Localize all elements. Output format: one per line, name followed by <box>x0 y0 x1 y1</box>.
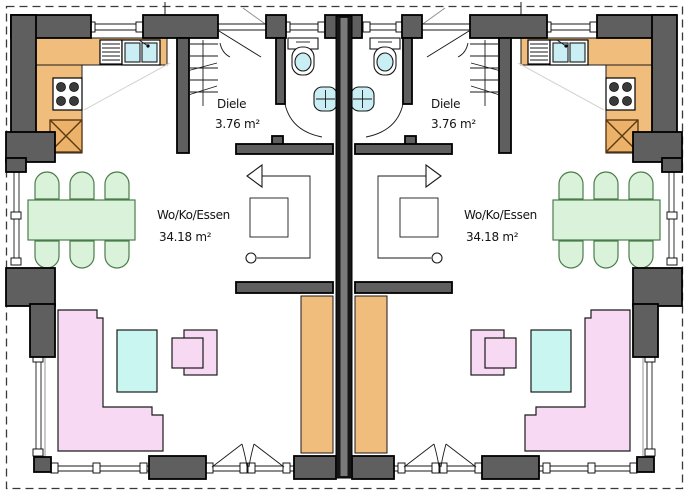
chair <box>105 172 129 199</box>
wall-top-left-block <box>143 15 218 38</box>
chair <box>70 241 94 268</box>
wall-left-upper <box>11 15 36 135</box>
wall-pier-bottom-center-right <box>352 456 394 479</box>
chair <box>629 241 653 268</box>
room-area-diele-left: 3.76 m² <box>215 117 260 131</box>
shaft-outline <box>400 198 438 237</box>
wall-right-jut-lower <box>633 268 682 306</box>
counter-diagonal-line <box>518 63 604 110</box>
armchair <box>471 330 516 375</box>
wall-wc-left <box>276 38 285 104</box>
porch-line-right <box>420 8 445 26</box>
dining-left <box>28 172 135 268</box>
walk-line-start <box>432 253 442 263</box>
wall-stair-left <box>177 38 189 153</box>
coffee-table <box>117 330 157 392</box>
chair <box>70 172 94 199</box>
wall-diele-right <box>355 144 452 154</box>
stove-icon <box>53 78 82 110</box>
walk-line <box>257 176 310 258</box>
door-swing-arc <box>220 43 230 57</box>
chair <box>629 172 653 199</box>
room-area-living-left: 34.18 m² <box>159 230 212 244</box>
sink-icon <box>122 40 160 65</box>
window-left-dining <box>11 165 21 265</box>
walk-line <box>378 176 431 258</box>
entrance-door-left <box>218 24 266 57</box>
door-leaf <box>254 444 284 467</box>
window-top-right-kitchen <box>544 22 597 32</box>
counter-diagonal-line <box>84 63 170 110</box>
wall-wc-right <box>403 38 412 104</box>
stair-room-right <box>378 165 442 263</box>
walk-line-start <box>246 253 256 263</box>
stairs-left <box>185 40 218 106</box>
wall-pier-right-entry <box>402 15 422 38</box>
shaft-outline <box>250 198 288 237</box>
wall-pier-left-entry <box>266 15 286 38</box>
room-area-living-right: 34.18 m² <box>466 230 519 244</box>
porch-line-left <box>243 8 268 26</box>
room-label-living-right: Wo/Ko/Essen <box>464 208 537 222</box>
wall-right-upper <box>652 15 677 135</box>
wall-stairroom-left <box>236 282 333 293</box>
stair-room-left <box>246 165 310 263</box>
toilet-icon <box>288 38 318 75</box>
window-top-left-wc <box>283 22 325 32</box>
wall-stair-right <box>499 38 511 153</box>
dishwasher-icon <box>528 40 550 64</box>
chimney-panel <box>301 296 333 453</box>
kitchen-right <box>518 38 652 153</box>
dining-table <box>28 200 135 240</box>
chair <box>35 241 59 268</box>
sink-icon <box>550 40 588 65</box>
wall-pier-bottom-center-left <box>294 456 336 479</box>
kitchen-left <box>36 38 170 153</box>
wall-left-jut-lower <box>6 268 55 306</box>
wc-left <box>285 38 337 137</box>
wall-pier-bottom-left <box>149 456 206 479</box>
dishwasher-icon <box>100 40 122 64</box>
wall-top-right-block <box>470 15 547 38</box>
stove-icon <box>606 78 635 110</box>
room-area-diele-right: 3.76 m² <box>431 117 476 131</box>
dining-table <box>553 200 660 240</box>
coffee-table <box>531 330 571 392</box>
wc-right <box>351 38 403 137</box>
stairs-right <box>470 40 503 106</box>
chair <box>594 172 618 199</box>
room-label-living-left: Wo/Ko/Essen <box>157 208 230 222</box>
window-top-left-kitchen <box>88 22 143 32</box>
wall-diele-left <box>236 144 333 154</box>
chair <box>559 172 583 199</box>
armchair <box>172 330 217 375</box>
chair <box>559 241 583 268</box>
chair <box>594 241 618 268</box>
door-leaf <box>404 444 434 467</box>
wall-corner-bottom-left <box>34 457 51 472</box>
wall-stairroom-right <box>355 282 452 293</box>
chair <box>35 172 59 199</box>
door-leaf <box>446 444 476 467</box>
direction-arrow-icon <box>247 165 262 187</box>
toilet-icon <box>370 38 400 75</box>
washbasin-icon <box>314 87 337 111</box>
direction-arrow-icon <box>426 165 441 187</box>
dining-right <box>553 172 660 268</box>
door-leaf <box>212 444 242 467</box>
chair <box>105 241 129 268</box>
wall-pier-bottom-right <box>482 456 539 479</box>
wall-corner-bottom-right <box>637 457 654 472</box>
living-right <box>355 296 630 453</box>
room-label-diele-left: Diele <box>217 97 246 111</box>
washbasin-icon <box>351 87 374 111</box>
window-top-right-wc <box>362 22 403 32</box>
floor-plan: Diele 3.76 m² Wo/Ko/Essen 34.18 m² <box>0 0 690 497</box>
room-label-diele-right: Diele <box>431 97 460 111</box>
door-swing-arc <box>458 43 468 57</box>
chimney-panel <box>355 296 387 453</box>
living-left <box>58 296 333 453</box>
entrance-door-right <box>422 24 470 57</box>
window-right-dining <box>667 165 677 265</box>
